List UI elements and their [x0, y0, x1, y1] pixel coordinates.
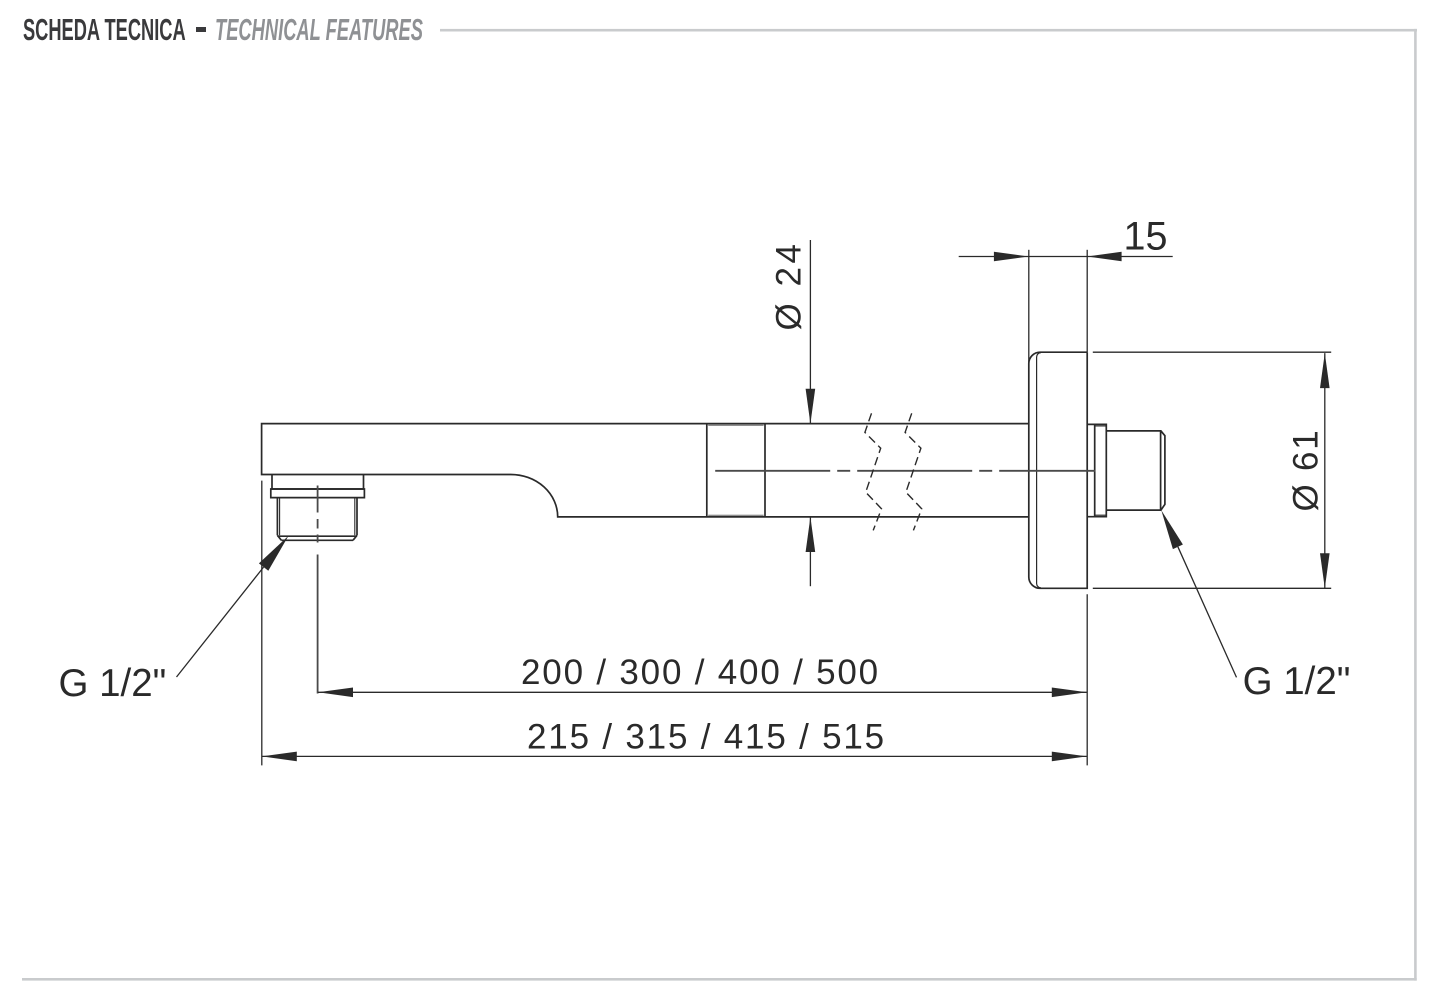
svg-text:15: 15	[1124, 215, 1168, 259]
svg-text:Ø 61: Ø 61	[1287, 428, 1326, 511]
svg-text:G 1/2": G 1/2"	[59, 662, 167, 705]
svg-text:G 1/2": G 1/2"	[1243, 660, 1351, 703]
svg-text:200 / 300 / 400 / 500: 200 / 300 / 400 / 500	[521, 653, 880, 692]
svg-text:215 / 315 / 415 / 515: 215 / 315 / 415 / 515	[527, 718, 886, 757]
svg-text:Ø 24: Ø 24	[770, 241, 809, 331]
